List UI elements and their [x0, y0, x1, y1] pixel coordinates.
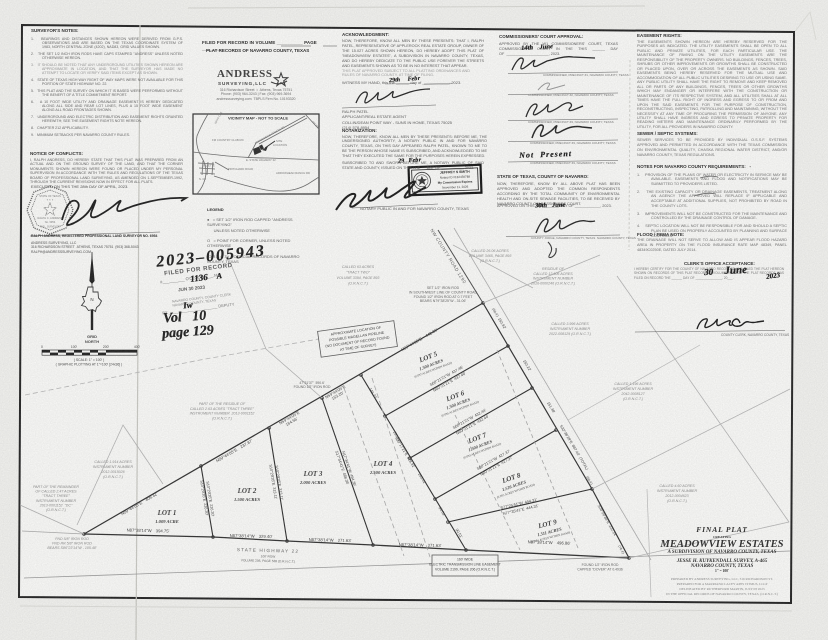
- svg-text:2.000 ACRES: 2.000 ACRES: [299, 480, 327, 485]
- svg-text:FOUND 1/2" IRON RODCAPPED "DOV: FOUND 1/2" IRON RODCAPPED "DOVER" AT 0.4…: [577, 563, 623, 571]
- svg-text:No. 6954: No. 6954: [45, 220, 56, 224]
- svg-text:CALLED 3.996 ACRESINSTRUMENT N: CALLED 3.996 ACRESINSTRUMENT NUMBER2022-…: [548, 322, 591, 336]
- svg-text:200': 200': [103, 345, 110, 349]
- svg-text:LOCATION: LOCATION: [273, 143, 287, 147]
- svg-text:RALPH C. ANDRESS: RALPH C. ANDRESS: [37, 216, 62, 220]
- svg-text:1.500 ACRES: 1.500 ACRES: [234, 497, 261, 502]
- svg-text:LOT 4: LOT 4: [373, 460, 393, 468]
- svg-text:0: 0: [41, 345, 43, 349]
- svg-text:2.500 ACRES: 2.500 ACRES: [369, 470, 397, 475]
- svg-text:FM COUNTRY CLUB RD: FM COUNTRY CLUB RD: [212, 138, 244, 142]
- svg-text:E. STATE HIGHWAY 22: E. STATE HIGHWAY 22: [246, 158, 276, 162]
- svg-text:PRITCHARD ROAD: PRITCHARD ROAD: [228, 167, 253, 171]
- svg-text:VICINITY MAP - NOT TO SCALE: VICINITY MAP - NOT TO SCALE: [228, 116, 288, 121]
- svg-text:N: N: [90, 297, 93, 302]
- svg-text:ARROWHEAD RANCH RD: ARROWHEAD RANCH RD: [276, 171, 310, 175]
- svg-text:( GRAPHIC PLOTTING AT 1"=100': ( GRAPHIC PLOTTING AT 1"=100' [24x36] ): [56, 363, 123, 367]
- svg-text:N. CR: N. CR: [199, 177, 206, 181]
- svg-text:LOT 3: LOT 3: [303, 470, 323, 478]
- svg-text:LOT 2: LOT 2: [237, 487, 257, 495]
- svg-text:R.P.L. SURVEYOR: R.P.L. SURVEYOR: [40, 227, 60, 229]
- svg-text:LOT 1: LOT 1: [157, 509, 177, 517]
- svg-text:( SCALE: 1" = 100' ): ( SCALE: 1" = 100' ): [74, 358, 104, 362]
- svg-text:100': 100': [71, 345, 78, 349]
- svg-text:BAZETTE: BAZETTE: [203, 164, 215, 168]
- svg-text:STATE OF TEXAS: STATE OF TEXAS: [39, 194, 61, 198]
- svg-text:400': 400': [134, 345, 141, 349]
- svg-text:★ ★ ★: ★ ★ ★: [46, 199, 53, 202]
- svg-text:1.009 ACRE: 1.009 ACRE: [155, 519, 179, 524]
